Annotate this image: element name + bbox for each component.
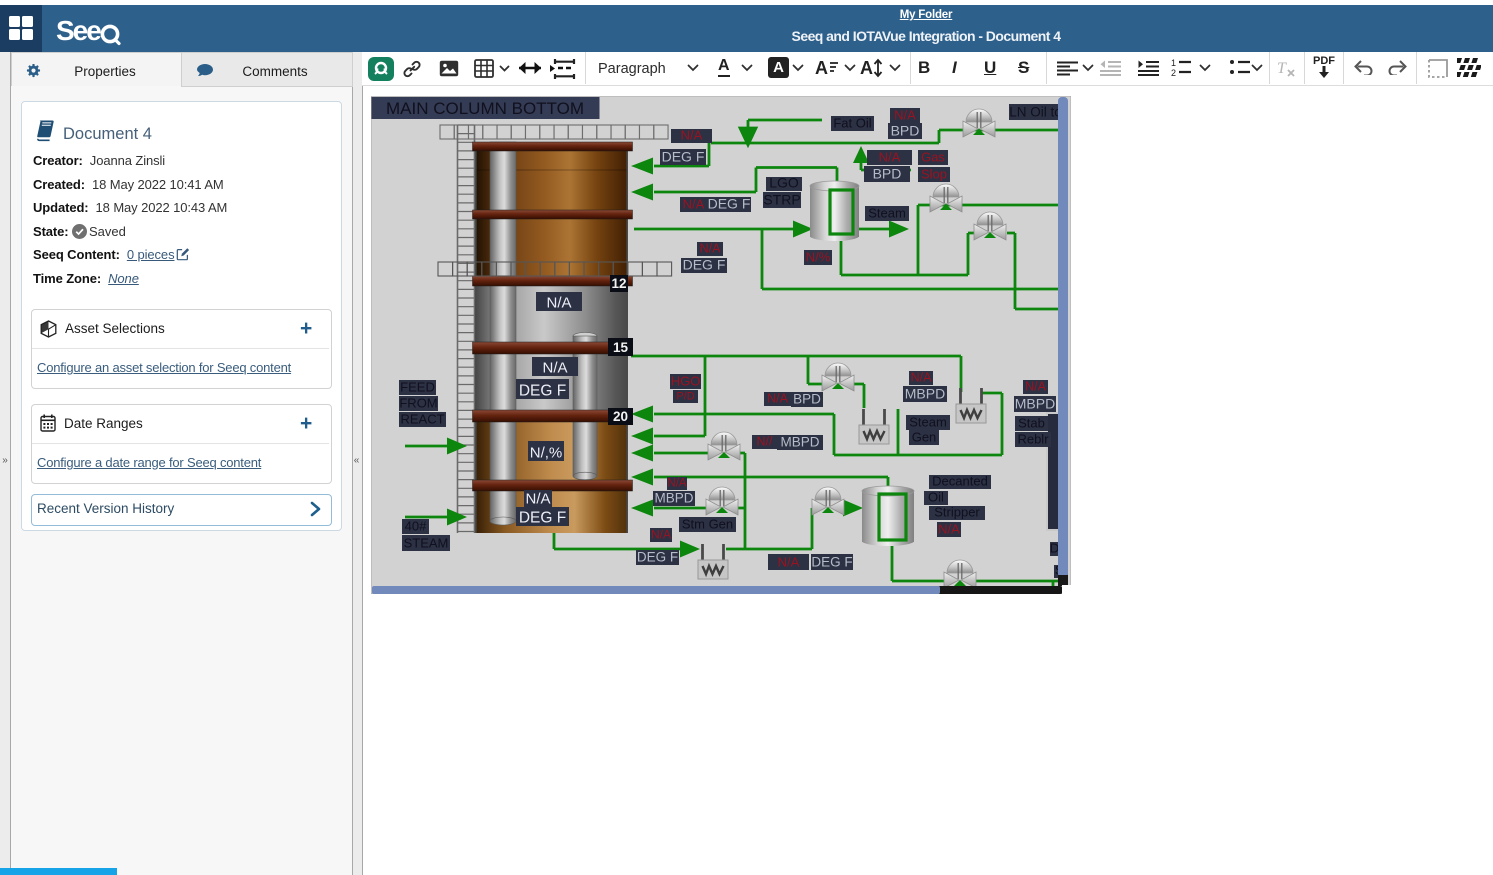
svg-text:Stripper: Stripper	[934, 505, 980, 520]
svg-text:DEG F: DEG F	[519, 510, 566, 527]
svg-text:MBPD: MBPD	[1015, 396, 1055, 412]
svg-text:15: 15	[613, 340, 629, 355]
svg-text:N/A: N/A	[542, 360, 567, 377]
svg-text:1: 1	[1171, 58, 1176, 68]
svg-text:BPD: BPD	[873, 166, 902, 182]
svg-text:N/A: N/A	[911, 371, 933, 385]
svg-text:Slop: Slop	[921, 167, 947, 182]
svg-text:DEG F: DEG F	[662, 149, 705, 165]
svg-text:2: 2	[1171, 68, 1176, 77]
svg-text:Steam: Steam	[868, 206, 906, 221]
svg-text:P/D: P/D	[676, 391, 694, 403]
svg-text:N/A: N/A	[778, 555, 800, 570]
svg-text:A: A	[815, 58, 828, 78]
svg-text:Reblr: Reblr	[1017, 432, 1049, 447]
svg-text:N/A: N/A	[546, 295, 571, 312]
svg-text:N/A: N/A	[651, 528, 671, 542]
svg-text:N/A: N/A	[879, 150, 901, 165]
svg-text:40#: 40#	[405, 519, 427, 534]
svg-text:N/A: N/A	[894, 108, 916, 123]
svg-text:HGO: HGO	[671, 374, 701, 389]
svg-text:12: 12	[611, 276, 626, 291]
svg-text:N/A: N/A	[681, 128, 703, 143]
svg-text:FEED: FEED	[400, 380, 435, 395]
svg-text:Gas: Gas	[921, 150, 945, 165]
svg-text:DEG F: DEG F	[811, 555, 852, 570]
svg-text:REACT: REACT	[400, 412, 444, 427]
svg-text:Gen: Gen	[912, 430, 937, 445]
svg-text:BPD: BPD	[891, 123, 920, 139]
svg-text:N/A: N/A	[700, 242, 722, 256]
svg-text:DEG F: DEG F	[708, 196, 751, 212]
svg-text:A: A	[860, 58, 873, 78]
svg-text:FROM: FROM	[399, 396, 437, 411]
svg-text:Stab: Stab	[1018, 416, 1045, 431]
svg-text:MBPD: MBPD	[905, 386, 945, 402]
svg-text:N/A: N/A	[938, 522, 960, 537]
svg-text:N//: N//	[757, 435, 774, 449]
svg-text:N/A: N/A	[767, 392, 789, 406]
svg-text:N/,%: N/,%	[530, 445, 563, 462]
svg-text:DEG F: DEG F	[637, 550, 678, 565]
svg-text:STRP: STRP	[763, 192, 800, 208]
svg-text:N/%: N/%	[806, 250, 831, 265]
svg-text:LGO: LGO	[769, 175, 799, 191]
svg-text:DEG F: DEG F	[519, 383, 566, 400]
svg-text:Steam: Steam	[909, 415, 947, 430]
svg-text:T: T	[1277, 60, 1287, 77]
svg-text:Stm Gen: Stm Gen	[682, 517, 733, 532]
svg-text:Oil: Oil	[928, 490, 944, 505]
svg-text:N/A: N/A	[683, 197, 705, 212]
svg-text:MBPD: MBPD	[780, 435, 819, 450]
svg-text:Fat Oil: Fat Oil	[833, 116, 871, 131]
svg-text:MBPD: MBPD	[654, 491, 693, 506]
svg-text:STEAM: STEAM	[404, 536, 449, 551]
svg-text:See: See	[56, 15, 101, 46]
svg-text:Decanted: Decanted	[932, 474, 988, 489]
svg-text:MAIN COLUMN BOTTOM: MAIN COLUMN BOTTOM	[386, 99, 584, 118]
svg-text:DEG F: DEG F	[683, 257, 726, 273]
svg-text:N/A: N/A	[525, 491, 550, 508]
svg-text:N/A: N/A	[667, 478, 687, 490]
svg-text:N/A: N/A	[1025, 380, 1047, 394]
svg-text:20: 20	[613, 409, 628, 424]
svg-text:BPD: BPD	[793, 392, 821, 407]
svg-text:LN Oil to: LN Oil to	[1009, 105, 1062, 120]
